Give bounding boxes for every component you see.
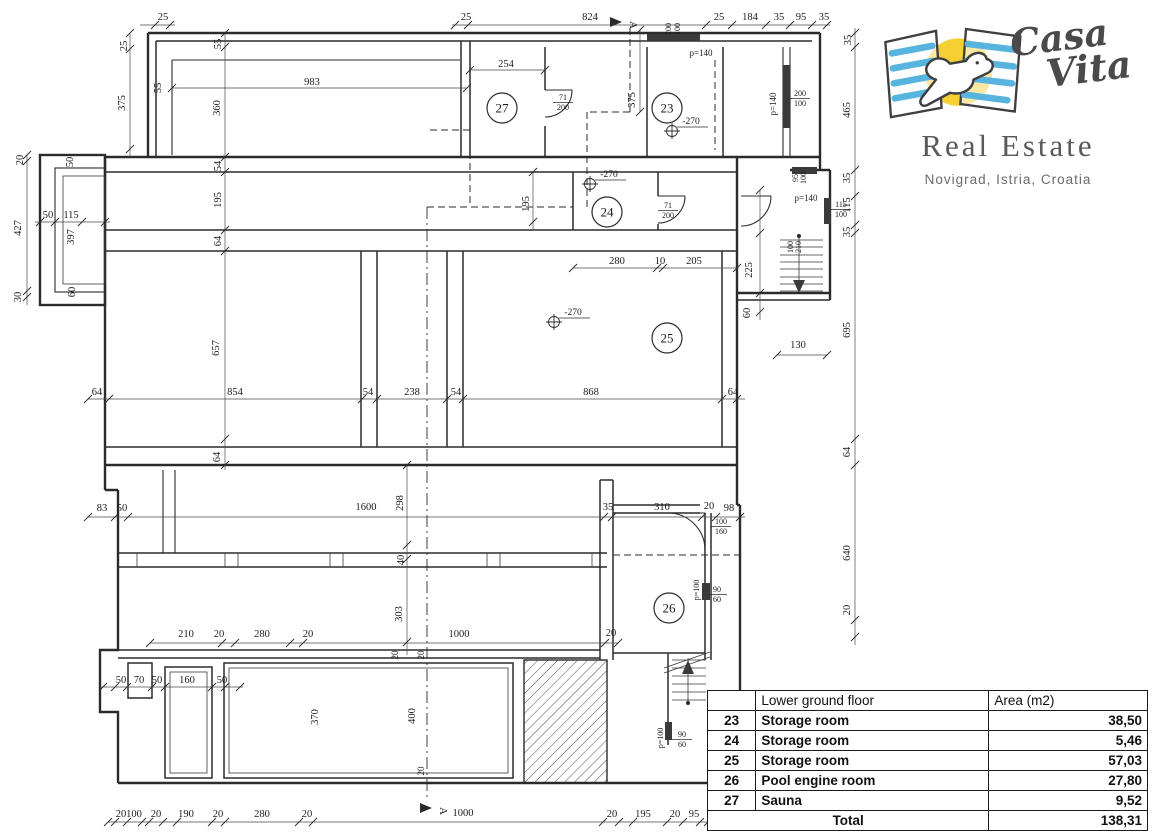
dim-label: 310 [654,502,670,513]
dim-label: 55 [153,83,164,94]
dim-label: 20 [704,501,715,512]
dim-label: 400 [407,708,418,724]
dim-label: 640 [842,545,853,561]
hatched-shaft [524,660,607,783]
dim-label: 427 [13,220,24,236]
dim-label: 55 [213,39,224,50]
dim-label: 95 [689,809,700,820]
dim-label: 200 [662,211,674,220]
dim-label: 225 [744,262,755,278]
dim-label: 1000 [449,629,470,640]
level-marker: -270 [664,117,708,139]
dim-label: 100 [715,517,727,526]
brand-subtitle: Real Estate [862,128,1152,164]
dim-label: 20 [416,650,426,660]
dim-label: 90 [678,730,686,739]
section-marker-A: A [420,803,449,815]
dim-label: 360 [212,100,223,116]
dim-label: 71 [664,201,672,210]
dim-label: 60 [67,287,78,298]
dim-label: 200 [794,89,806,98]
table-row-24: 24Storage room5,46 [708,731,1148,751]
dim-label: 375 [627,92,638,108]
room-number-23: 23 [661,101,674,116]
table-row-26: 26Pool engine room27,80 [708,771,1148,791]
dim-label: 868 [583,387,599,398]
dim-label: 20 [302,809,313,820]
brand-line2: Vita [1044,43,1152,92]
dim-label: 50 [117,503,128,514]
dim-label: 83 [97,503,108,514]
dim-label: 1600 [356,502,377,513]
dim-label: 100 [794,99,806,108]
dim-label: 298 [395,495,406,511]
dim-label: 64 [212,451,223,462]
agency-logo: Casa Vita Real Estate Novigrad, Istria, … [862,10,1152,200]
section-letter: A [627,21,639,29]
dim-label: 64 [728,387,739,398]
dim-label: 35 [843,35,854,46]
dim-label: 238 [404,387,420,398]
table-row-27: 27Sauna9,52 [708,791,1148,811]
dim-label: 20 [213,809,224,820]
level-value: -270 [600,170,618,180]
dim-label: 64 [842,446,853,457]
dim-label: 30 [13,292,24,303]
dim-label: 50 [43,210,54,221]
level-marker: -270 [546,308,590,330]
cell-num: 23 [708,711,756,731]
table-total-row: Total 138,31 [708,811,1148,831]
level-value: -270 [682,117,700,127]
room-number-24: 24 [601,205,615,220]
dim-label: 303 [394,606,405,622]
dim-label: 195 [521,196,532,212]
dim-label: 280 [254,629,270,640]
size-fraction-label: 71200 [553,93,573,112]
dim-label: 20 [303,629,314,640]
floor-plan-page: 2525824251843595359832542801020564854542… [0,0,1152,837]
dim-label: 1000 [453,808,474,819]
table-row-25: 25Storage room57,03 [708,751,1148,771]
dim-label: 35 [774,12,785,23]
dim-label: 50 [65,157,76,168]
dim-label: 205 [686,256,702,267]
dim-label: 35 [842,227,853,238]
dim-label: 100 [126,809,142,820]
dim-label: 71 [559,93,567,102]
cell-num: 24 [708,731,756,751]
dim-label: 115 [835,200,847,209]
level-marker: -270 [582,170,626,192]
dim-label: 370 [310,709,321,725]
dim-label: 35 [842,173,853,184]
dim-label: 983 [304,77,320,88]
dim-label: 20 [607,809,618,820]
room-number-27: 27 [496,101,510,116]
header-floor-label: Lower ground floor [756,691,989,711]
dim-label: 100 [835,210,847,219]
dim-label: 60 [742,308,753,319]
cell-num: 25 [708,751,756,771]
cell-ar: 38,50 [989,711,1148,731]
dim-label: p=140 [689,48,713,58]
size-fraction-label: 9060 [672,730,692,749]
dim-label: 280 [254,809,270,820]
dim-label: 254 [498,59,515,70]
dim-label: 25 [119,41,130,52]
dim-label: 70 [134,675,145,686]
staircase-lower [664,652,710,705]
dim-label: 20 [416,766,426,776]
dim-label: 190 [178,809,194,820]
section-letter: A [437,807,449,815]
cell-nm: Sauna [756,791,989,811]
dim-label: 40 [396,555,407,566]
cell-num: 27 [708,791,756,811]
room-number-26: 26 [663,601,677,616]
dim-label: 100 [673,23,682,35]
table-row-23: 23Storage room38,50 [708,711,1148,731]
dim-label: 465 [842,102,853,118]
dim-label: 375 [117,95,128,111]
room-number-25: 25 [661,331,674,346]
cell-ar: 57,03 [989,751,1148,771]
dim-label: 397 [66,229,77,245]
dim-label: 100 [799,172,808,184]
brand-name: Casa Vita [1006,10,1152,97]
dim-label: 210 [178,629,194,640]
dim-label: 20 [670,809,681,820]
dim-label: p=140 [768,92,778,116]
outer-walls [100,33,830,783]
dim-label: 50 [152,675,163,686]
size-fraction-label: 100160 [711,517,731,536]
cell-num: 26 [708,771,756,791]
dim-label: 10 [655,256,666,267]
dim-label: 25 [158,12,169,23]
dim-label: 160 [715,527,727,536]
cell-nm: Pool engine room [756,771,989,791]
dim-label: 20 [842,605,853,616]
cell-nm: Storage room [756,751,989,771]
dim-label: 824 [582,12,599,23]
cell-ar: 9,52 [989,791,1148,811]
inner-walls [40,41,830,778]
dim-label: 54 [363,387,374,398]
total-label: Total [708,811,989,831]
brand-location: Novigrad, Istria, Croatia [862,172,1152,187]
dim-label: 64 [92,387,103,398]
dim-label: 35 [603,502,614,513]
dim-label: 20 [390,650,400,660]
dim-label: 35 [819,12,830,23]
header-room-col [708,691,756,711]
dim-label: 200 [557,103,569,112]
dim-label: 50 [217,675,228,686]
casa-vita-flag-icon [876,20,1026,128]
cell-ar: 27,80 [989,771,1148,791]
header-area-label: Area (m2) [989,691,1148,711]
size-fraction-label: 200100 [790,89,810,108]
dim-label: 280 [609,256,625,267]
dim-label: 20 [116,809,127,820]
dim-label: 20 [151,809,162,820]
dim-label: 115 [63,210,78,221]
dim-label: 657 [211,340,222,356]
dim-label: 20 [15,155,26,166]
dim-label: 184 [742,12,759,23]
dim-label: p=140 [794,193,818,203]
dim-label: 25 [714,12,725,23]
dim-label: 54 [451,387,462,398]
total-value: 138,31 [989,811,1148,831]
cell-ar: 5,46 [989,731,1148,751]
room-area-table: Lower ground floor Area (m2) 23Storage r… [707,690,1148,831]
dim-label: 64 [213,235,224,246]
level-value: -270 [564,308,582,318]
dim-label: 130 [790,340,806,351]
dim-label: p=100 [656,728,665,749]
dim-label: p=100 [692,580,701,601]
dim-label: 200 [664,23,673,35]
cell-nm: Storage room [756,711,989,731]
level-markers: -270-270-270 [546,117,708,330]
cell-nm: Storage room [756,731,989,751]
dim-label: 98 [724,503,735,514]
dim-label: 160 [179,675,195,686]
dim-label: 195 [635,809,651,820]
dim-label: 210 [794,241,803,253]
dim-label: 20 [606,628,617,639]
dim-label: 90 [713,585,721,594]
dim-label: 854 [227,387,244,398]
dim-label: 60 [713,595,721,604]
section-marker-A: A [610,17,639,29]
dim-label: 25 [461,12,472,23]
dim-label: 50 [116,675,127,686]
dim-label: 54 [213,160,224,171]
table-header-row: Lower ground floor Area (m2) [708,691,1148,711]
dim-label: 95 [796,12,807,23]
dim-label: 20 [214,629,225,640]
dim-label: 60 [678,740,686,749]
dim-label: 195 [213,192,224,208]
dim-label: 695 [842,322,853,338]
